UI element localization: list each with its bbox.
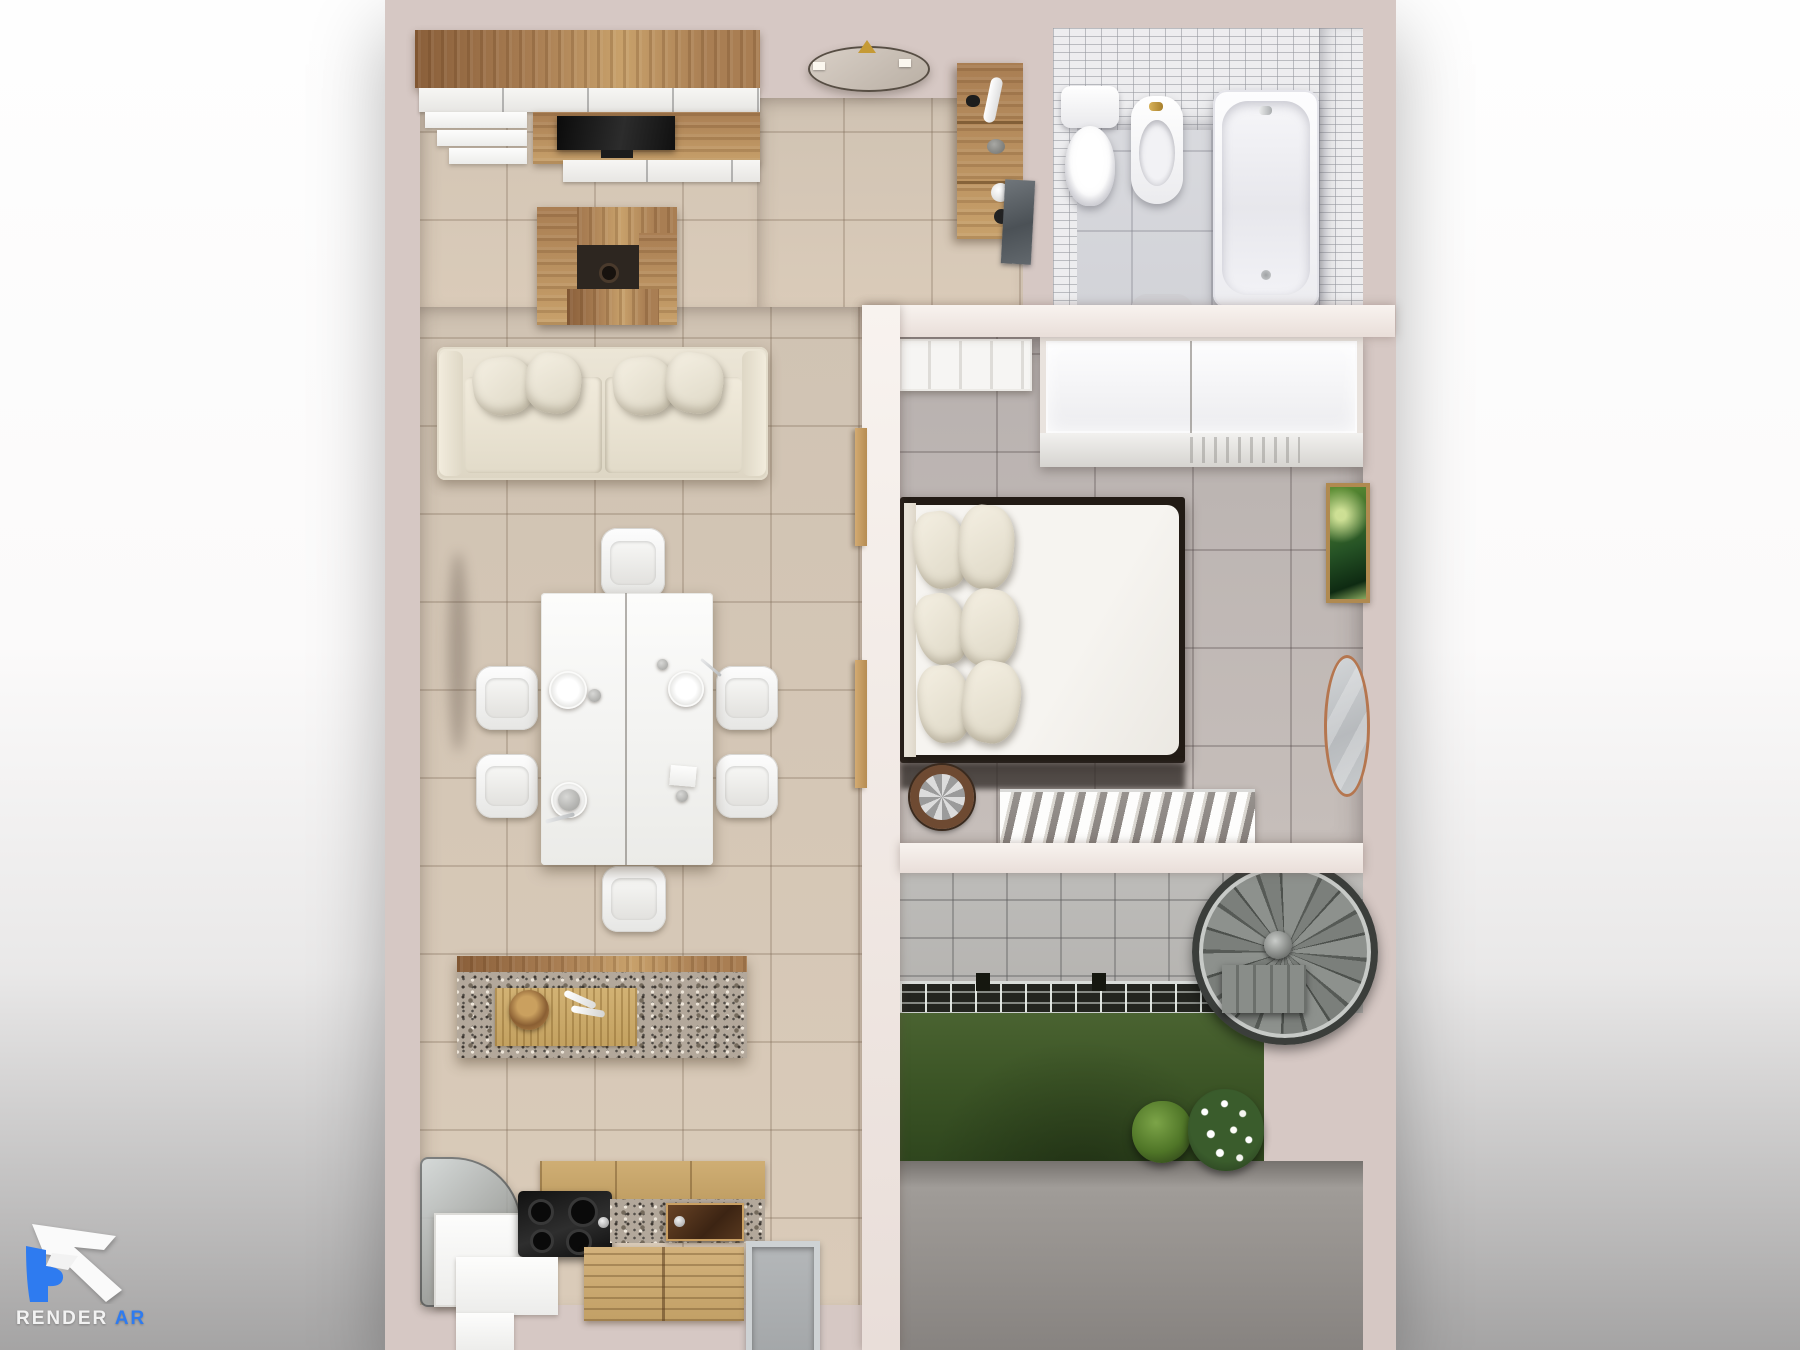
wall-wood-panel [855, 660, 867, 788]
tv-unit-lower-cabinets [563, 160, 760, 182]
bidet-faucet [1149, 102, 1163, 111]
sofa-armrest-left [439, 351, 463, 476]
logo-brand: RENDER [16, 1308, 108, 1329]
plate [549, 671, 587, 709]
kitchen-counter-run [420, 1155, 808, 1350]
burner [568, 1197, 598, 1227]
bathroom-mosaic-wall-right [1319, 28, 1363, 310]
render-canvas: RENDER AR [0, 0, 1800, 1350]
black-cup [966, 95, 980, 107]
ceiling-lamp-tab [899, 59, 911, 67]
spiral-staircase-hub [1264, 931, 1292, 959]
bathroom [1053, 28, 1363, 310]
wood-crate [584, 1247, 744, 1321]
tv-stand [601, 150, 633, 158]
bathtub [1213, 90, 1319, 308]
wall-bedroom-terrace [900, 843, 1363, 873]
toilet-bowl [1065, 126, 1115, 206]
grate-post [976, 973, 990, 991]
toilet-tank [1061, 86, 1119, 128]
logo-suffix: AR [115, 1308, 146, 1329]
bathtub-drain [1261, 270, 1271, 280]
double-bed [900, 497, 1185, 763]
wall-wood-panel [855, 428, 867, 546]
cup [676, 790, 688, 802]
staircase-landing [1222, 965, 1306, 1013]
bathroom-glass-door [1001, 179, 1035, 264]
tv-unit-upper-cabinet [415, 30, 760, 88]
paper-roll [982, 76, 1003, 123]
grate-post [1092, 973, 1106, 991]
bowl [558, 789, 580, 811]
cube-shelf-bottom [567, 289, 659, 325]
cup [657, 659, 668, 670]
stone-decor [987, 139, 1005, 154]
dining-chair-top [601, 528, 665, 598]
napkin [669, 765, 697, 787]
bathtub-faucet [1259, 106, 1272, 115]
sofa [437, 347, 768, 480]
oven-glass-door [666, 1203, 744, 1241]
dining-chair-left [476, 754, 538, 818]
table-leaf-seam [625, 593, 627, 865]
wardrobe-louvers [1190, 437, 1300, 463]
wall-art [1326, 483, 1370, 603]
dining-chair-bottom [602, 866, 666, 932]
moss-ball-plant [1132, 1101, 1192, 1163]
white-floor-mat [456, 1257, 558, 1315]
bedroom-panel-door [900, 339, 1032, 391]
wardrobe-top-panel [1046, 341, 1357, 433]
oval-mirror [1324, 655, 1370, 797]
wardrobe-door-seam [1190, 341, 1192, 433]
terrace [900, 873, 1363, 1350]
dining-chair-left [476, 666, 538, 730]
cooktop-knob [598, 1217, 609, 1228]
dining-chair-right [716, 754, 778, 818]
bathtub-basin [1222, 101, 1310, 295]
laundry-drying-rack [1000, 789, 1255, 851]
wall-shadow [448, 552, 468, 752]
wall-cube-shelf [537, 207, 677, 325]
burner [528, 1199, 554, 1225]
dining-chair-right [716, 666, 778, 730]
white-flower-bush [1188, 1089, 1264, 1171]
crate-divider [662, 1247, 665, 1321]
bedroom [900, 337, 1363, 845]
sofa-armrest-right [742, 351, 766, 476]
renderar-logo-icon [18, 1220, 130, 1304]
dining-table [541, 593, 713, 865]
bidet-basin [1139, 120, 1175, 186]
wardrobe-closet [1040, 337, 1363, 467]
tv-unit-shelf-step [425, 112, 527, 128]
renderar-logo-text: RENDER AR [16, 1308, 146, 1330]
tv-unit-white-cabinets [419, 88, 760, 112]
oven-handle [674, 1216, 685, 1227]
renderar-logo: RENDER AR [16, 1220, 166, 1332]
bidet [1131, 96, 1183, 204]
wall-living-bedroom [862, 305, 900, 1350]
tv-unit-shelf-step [449, 148, 527, 164]
bedside-fan-table [910, 765, 974, 829]
cube-shelf-knob [599, 263, 619, 283]
kitchen-island [457, 956, 747, 1058]
plate [668, 671, 704, 707]
wooden-bowl [509, 990, 549, 1030]
ceiling-lamp-tab [813, 62, 825, 70]
terrace-floor-grate [900, 981, 1228, 1015]
flat-tv [557, 116, 675, 150]
metal-drain-tray [746, 1241, 820, 1350]
tv-unit-shelf-step [437, 130, 527, 146]
cup [588, 689, 601, 702]
tv-wall-unit [415, 30, 760, 182]
wall-hall-bedroom [862, 305, 1395, 337]
burner [530, 1229, 554, 1253]
terrace-concrete-floor [900, 1161, 1363, 1350]
white-floor-mat-step [456, 1313, 514, 1350]
